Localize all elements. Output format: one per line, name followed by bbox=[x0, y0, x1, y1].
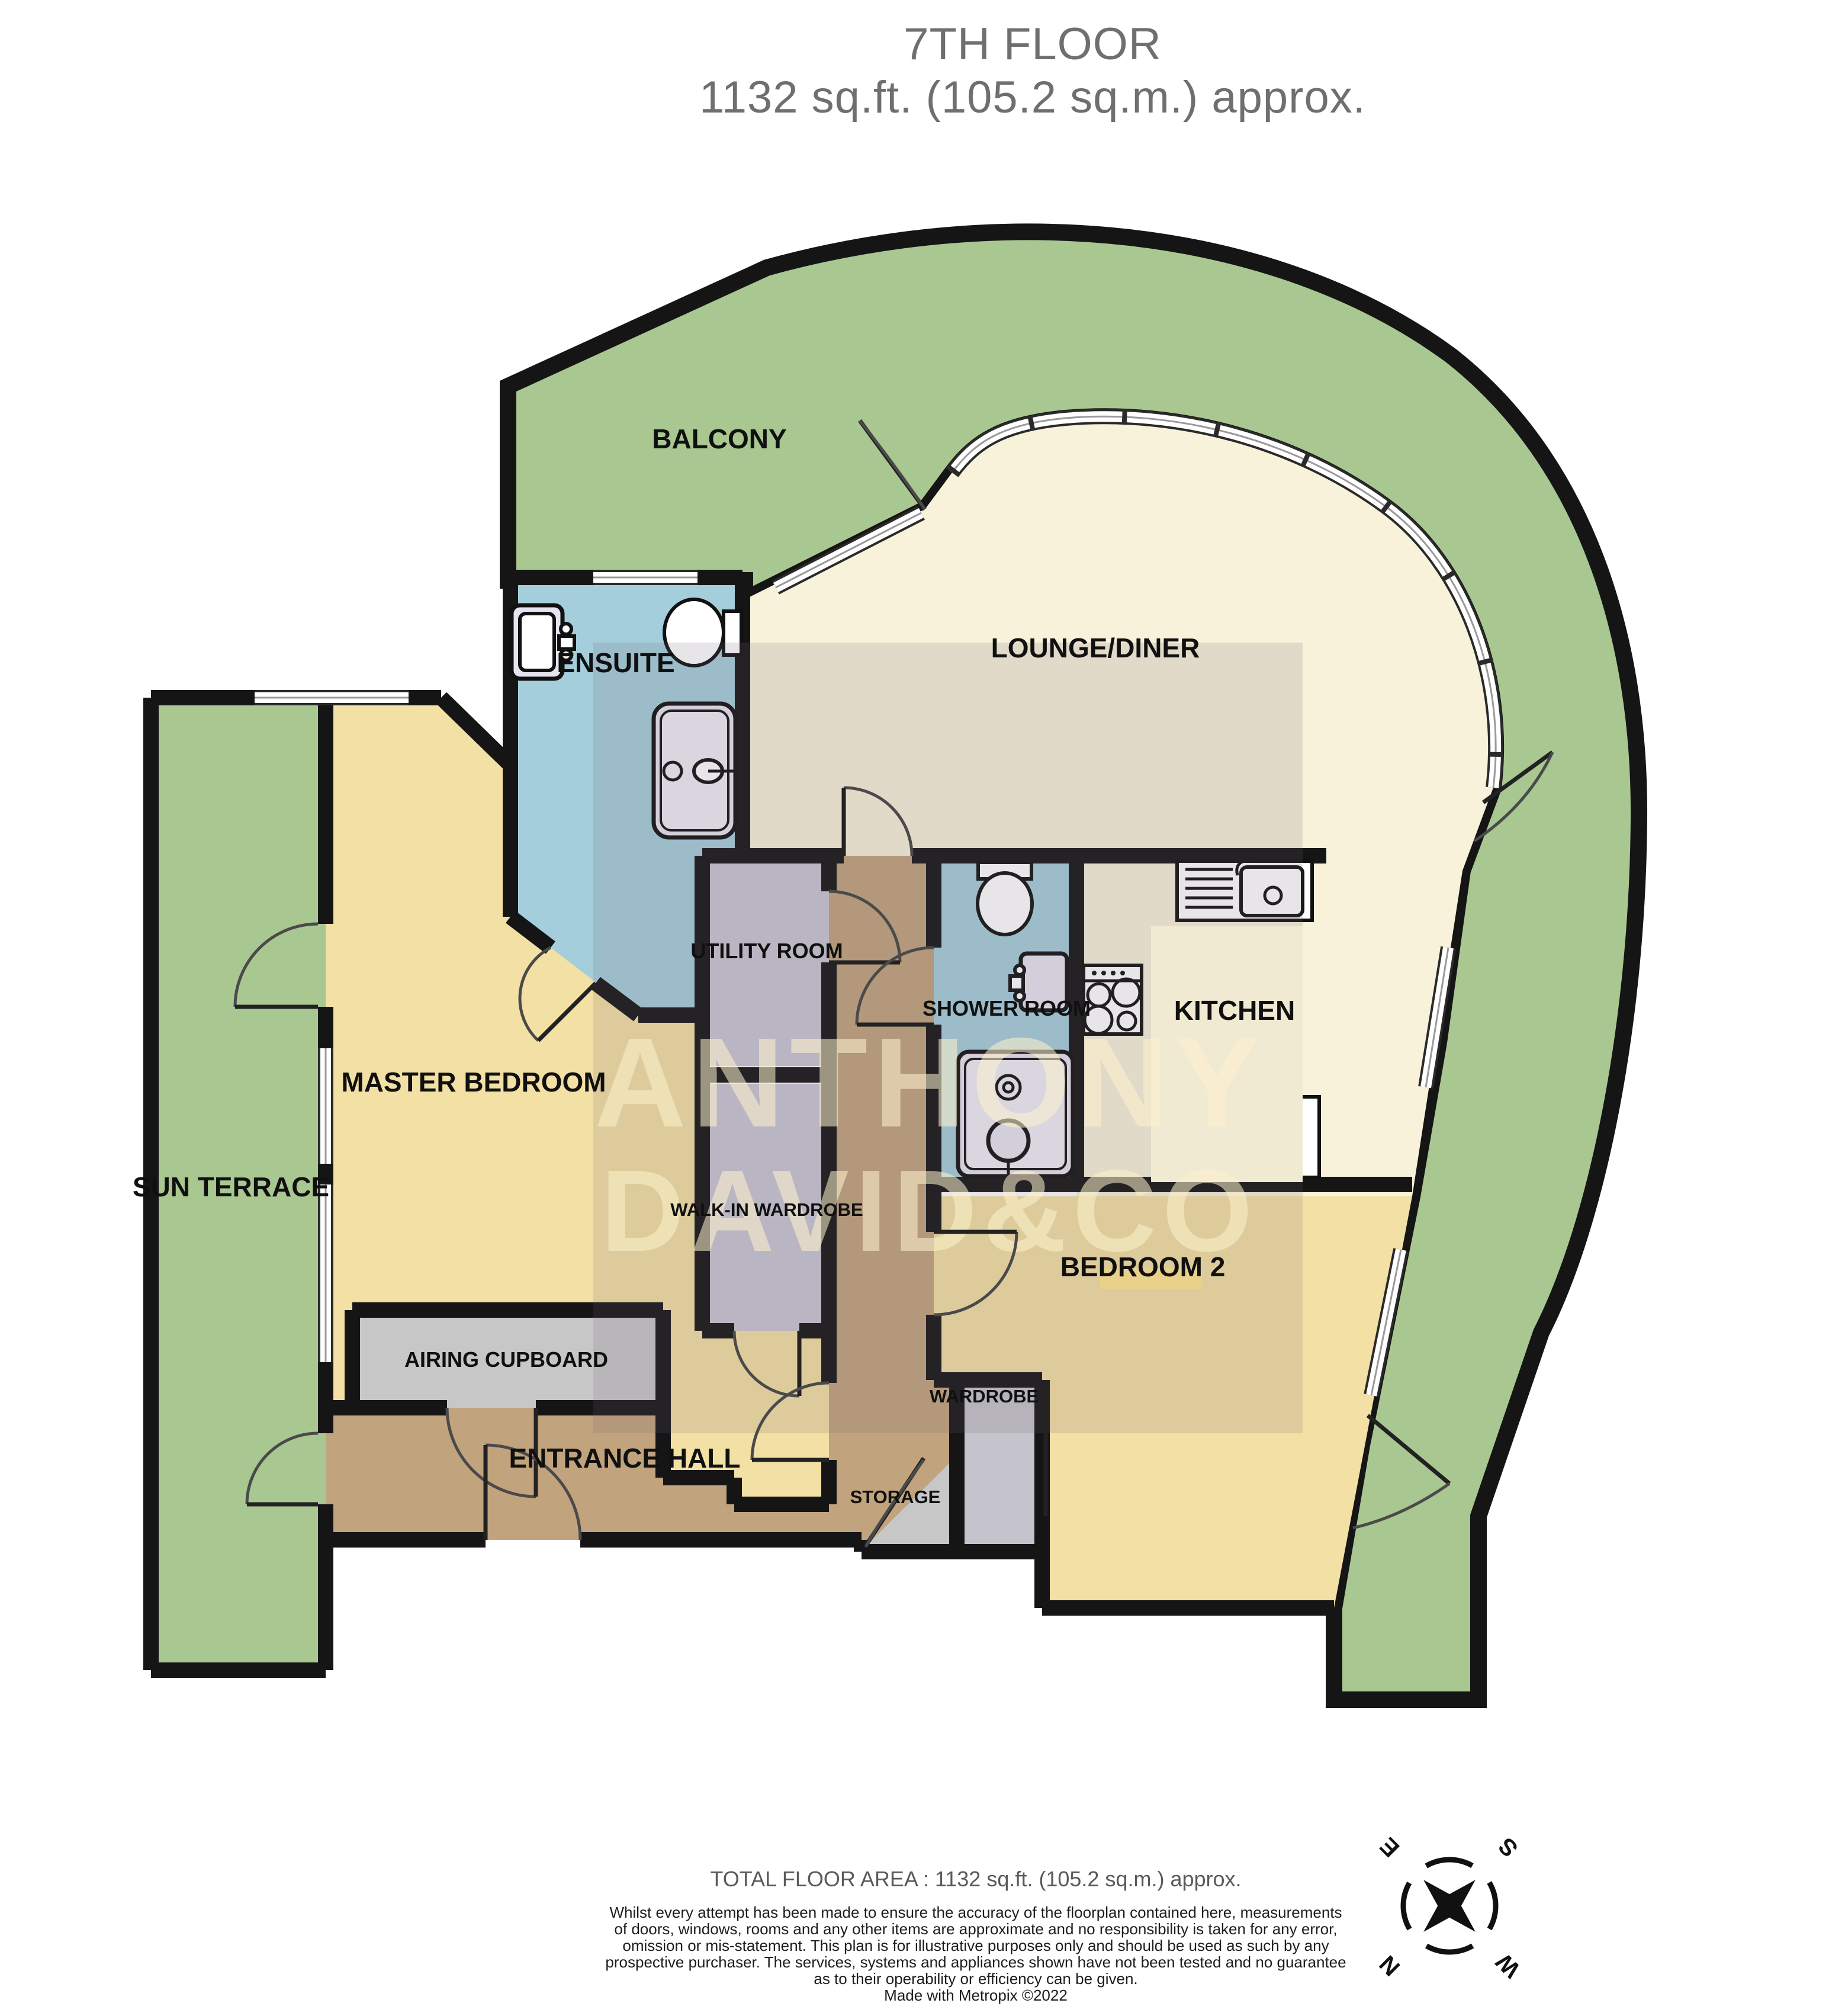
label-walkin: WALK-IN WARDROBE bbox=[670, 1199, 863, 1220]
page-title-line1: 7TH FLOOR bbox=[904, 19, 1162, 69]
label-kitchen: KITCHEN bbox=[1174, 995, 1295, 1026]
label-wardrobe: WARDROBE bbox=[930, 1386, 1039, 1407]
label-airing: AIRING CUPBOARD bbox=[404, 1347, 608, 1372]
label-utility: UTILITY ROOM bbox=[690, 939, 843, 963]
label-shower: SHOWER ROOM bbox=[922, 996, 1091, 1020]
metropix-credit: Made with Metropix ©2022 bbox=[884, 1986, 1068, 2004]
watermark-line1: ANTHONY bbox=[594, 1011, 1265, 1154]
disclaimer-line-3: omission or mis-statement. This plan is … bbox=[622, 1937, 1329, 1954]
label-balcony: BALCONY bbox=[652, 423, 786, 454]
floor-plan: ❄ ANTHONY DAVID&CO BALCONY ENSUITE LOUNG… bbox=[0, 0, 1845, 2016]
label-bedroom2: BEDROOM 2 bbox=[1060, 1251, 1226, 1282]
label-hall: ENTRANCE HALL bbox=[509, 1443, 741, 1474]
label-storage: STORAGE bbox=[850, 1487, 941, 1507]
compass-rose-icon: N E S W bbox=[1375, 1832, 1526, 1983]
footer: TOTAL FLOOR AREA : 1132 sq.ft. (105.2 sq… bbox=[605, 1867, 1346, 2004]
disclaimer-line-4: prospective purchaser. The services, sys… bbox=[605, 1953, 1346, 1971]
disclaimer-line-1: Whilst every attempt has been made to en… bbox=[609, 1903, 1342, 1921]
page-title-line2: 1132 sq.ft. (105.2 sq.m.) approx. bbox=[699, 72, 1366, 123]
label-lounge: LOUNGE/DINER bbox=[991, 633, 1200, 663]
label-master: MASTER BEDROOM bbox=[341, 1067, 606, 1097]
total-floor-area: TOTAL FLOOR AREA : 1132 sq.ft. (105.2 sq… bbox=[710, 1867, 1241, 1891]
compass-w: W bbox=[1491, 1948, 1525, 1983]
disclaimer-line-2: of doors, windows, rooms and any other i… bbox=[614, 1920, 1337, 1938]
disclaimer-line-5: as to their operability or efficiency ca… bbox=[814, 1970, 1137, 1988]
label-ensuite: ENSUITE bbox=[557, 647, 674, 678]
compass-e: E bbox=[1375, 1832, 1404, 1862]
label-terrace: SUN TERRACE bbox=[133, 1171, 329, 1202]
compass-s: S bbox=[1493, 1832, 1523, 1862]
compass-n: N bbox=[1375, 1950, 1406, 1981]
